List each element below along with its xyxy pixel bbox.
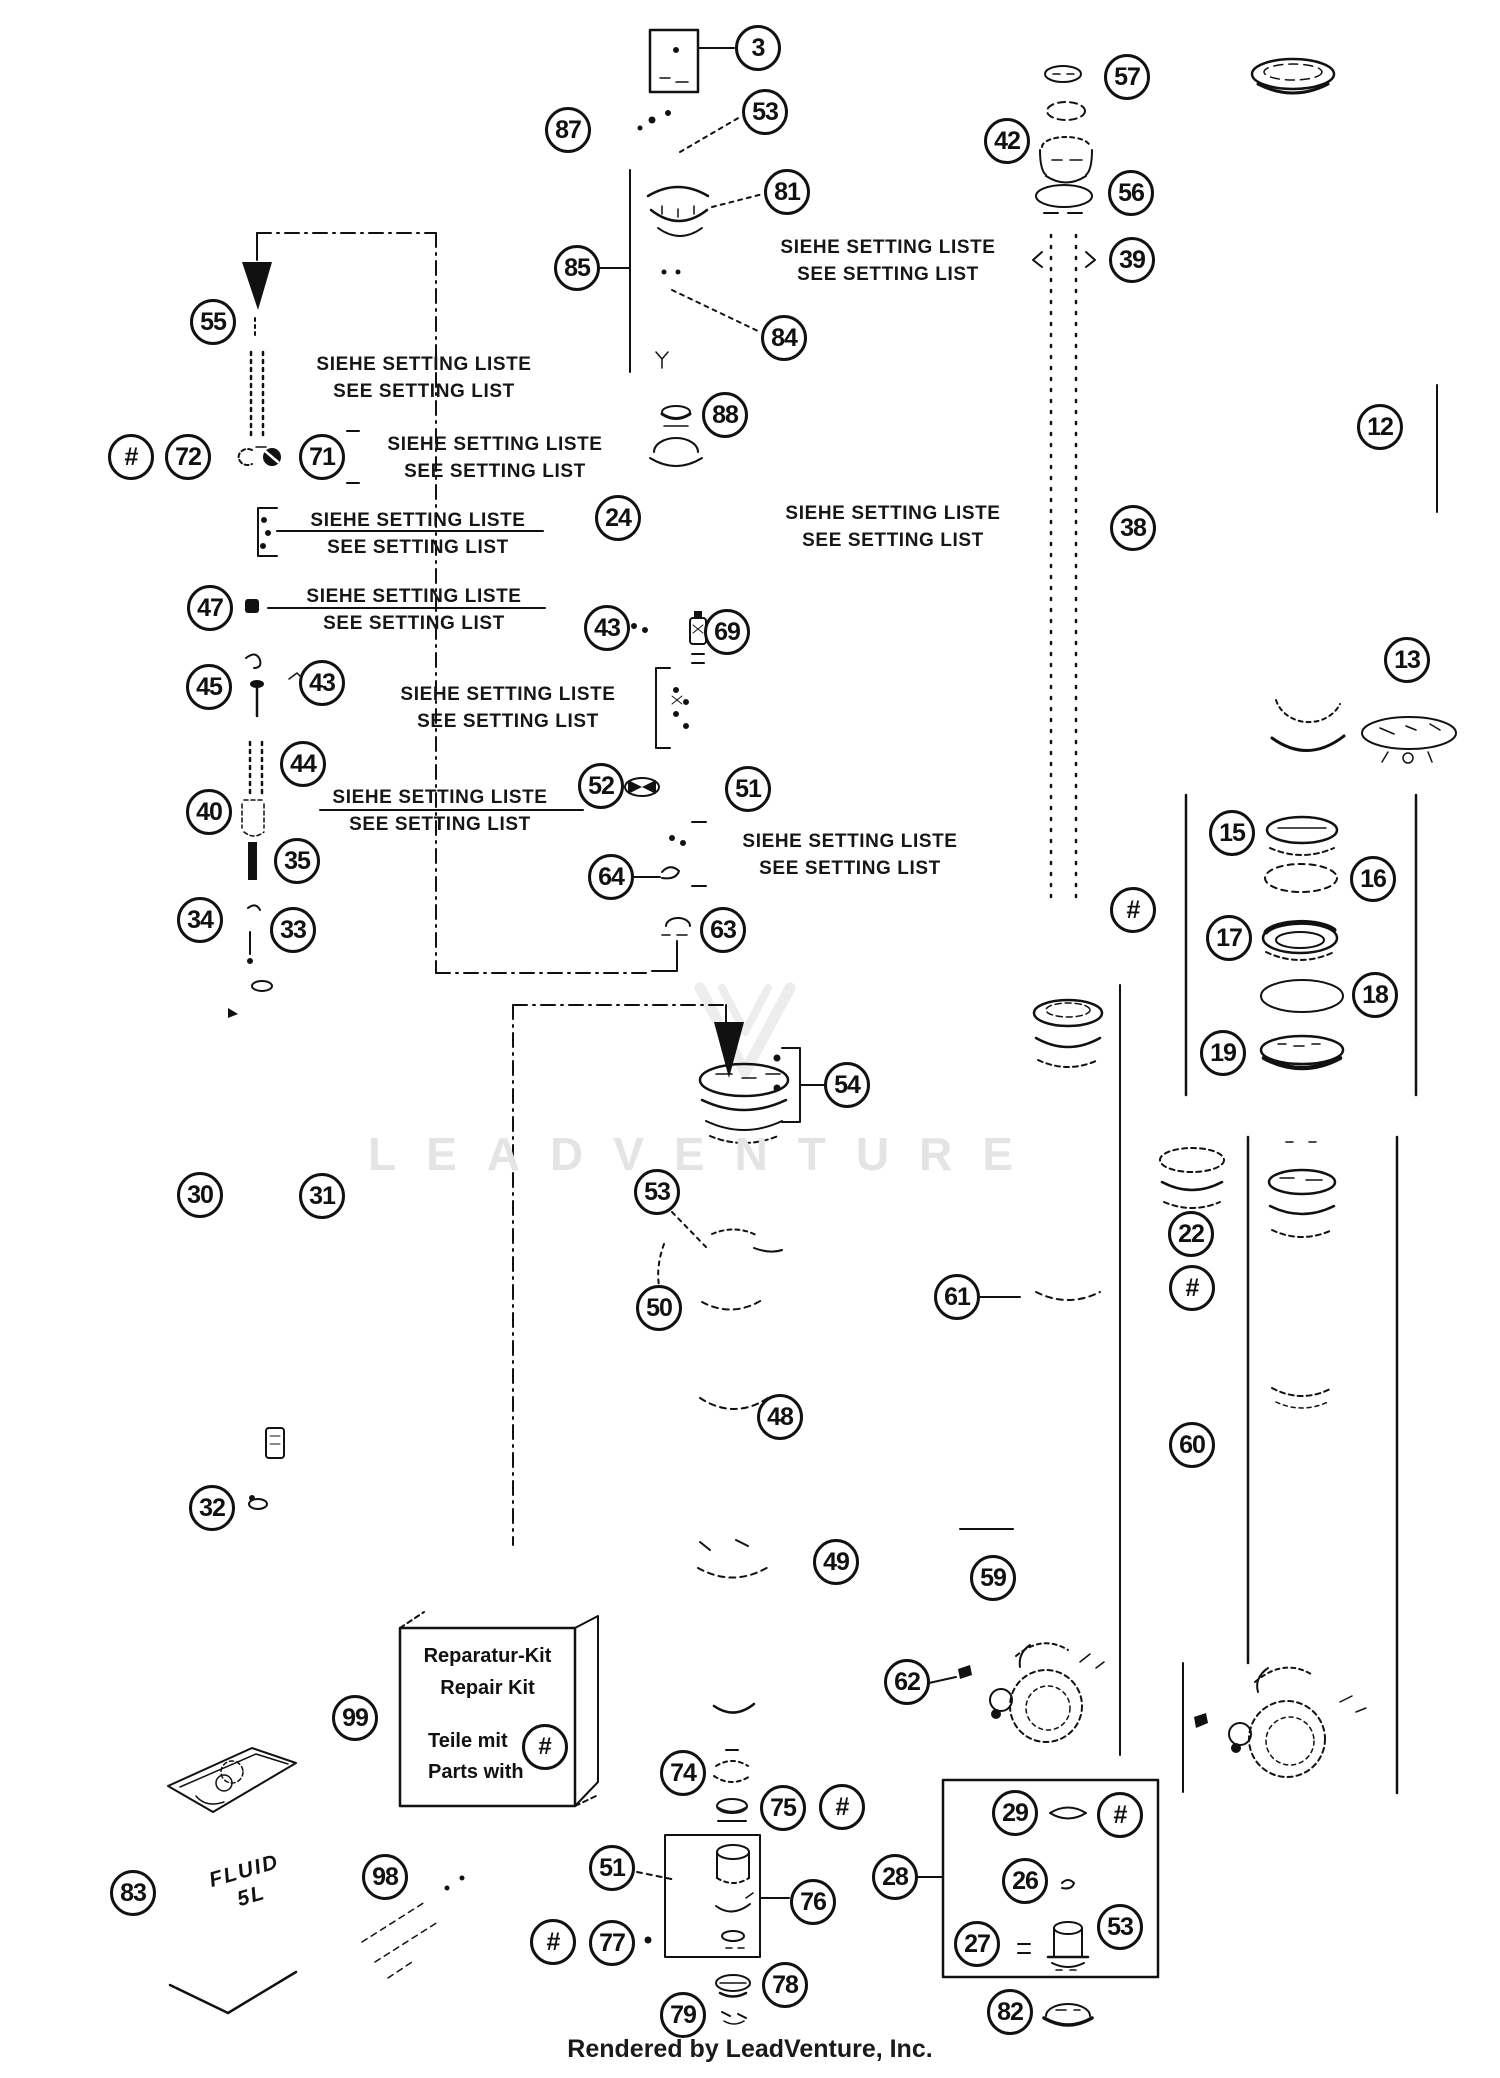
setting-note-de: SIEHE SETTING LISTE xyxy=(310,507,525,534)
callout-hash-15[interactable]: # xyxy=(108,434,154,480)
callout-label: 60 xyxy=(1179,1433,1205,1458)
callout-55-14[interactable]: 55 xyxy=(190,299,236,345)
callout-28-58[interactable]: 28 xyxy=(872,1854,918,1900)
callout-label: 75 xyxy=(770,1796,796,1821)
callout-32-49[interactable]: 32 xyxy=(189,1485,235,1531)
callout-label: 54 xyxy=(834,1073,860,1098)
callout-label: 79 xyxy=(670,2003,696,2028)
callout-33-31[interactable]: 33 xyxy=(270,907,316,953)
setting-note-de: SIEHE SETTING LISTE xyxy=(387,431,602,458)
callout-16-35[interactable]: 16 xyxy=(1350,856,1396,902)
callout-label: 82 xyxy=(997,2000,1023,2025)
callout-3-0[interactable]: 3 xyxy=(735,25,781,71)
setting-note-4: SIEHE SETTING LISTESEE SETTING LIST xyxy=(400,681,615,735)
callout-label: 30 xyxy=(187,1183,213,1208)
callout-label: 61 xyxy=(944,1285,970,1310)
setting-note-en: SEE SETTING LIST xyxy=(332,811,547,838)
callout-label: 84 xyxy=(771,326,797,351)
callout-label: 56 xyxy=(1118,181,1144,206)
callout-hash-46[interactable]: # xyxy=(1169,1265,1215,1311)
callout-label: 43 xyxy=(594,616,620,641)
setting-note-en: SEE SETTING LIST xyxy=(310,534,525,561)
callout-label: 78 xyxy=(772,1973,798,1998)
callout-13-13[interactable]: 13 xyxy=(1384,637,1430,683)
callout-label: 24 xyxy=(605,506,631,531)
setting-note-en: SEE SETTING LIST xyxy=(306,610,521,637)
callout-label: 35 xyxy=(284,849,310,874)
callout-15-34[interactable]: 15 xyxy=(1209,810,1255,856)
callout-label: 28 xyxy=(882,1865,908,1890)
callout-49-50[interactable]: 49 xyxy=(813,1539,859,1585)
callout-38-12[interactable]: 38 xyxy=(1110,505,1156,551)
callout-label: 53 xyxy=(1107,1915,1133,1940)
setting-note-en: SEE SETTING LIST xyxy=(400,708,615,735)
setting-note-de: SIEHE SETTING LISTE xyxy=(785,500,1000,527)
callout-84-5[interactable]: 84 xyxy=(761,315,807,361)
callout-label: 55 xyxy=(200,310,226,335)
callout-label: 40 xyxy=(196,800,222,825)
callout-label: 98 xyxy=(372,1865,398,1890)
callout-82-71[interactable]: 82 xyxy=(987,1989,1033,2035)
callout-label: 69 xyxy=(714,620,740,645)
callout-label: 53 xyxy=(752,100,778,125)
setting-note-0: SIEHE SETTING LISTESEE SETTING LIST xyxy=(316,351,531,405)
callout-label: 62 xyxy=(894,1670,920,1695)
callout-18-37[interactable]: 18 xyxy=(1352,972,1398,1018)
callout-label: # xyxy=(836,1795,849,1820)
callout-label: 3 xyxy=(752,36,765,61)
callout-24-18[interactable]: 24 xyxy=(595,495,641,541)
setting-note-8: SIEHE SETTING LISTESEE SETTING LIST xyxy=(785,500,1000,554)
callout-26-68[interactable]: 26 xyxy=(1002,1858,1048,1904)
callout-label: 15 xyxy=(1219,821,1245,846)
callout-label: 76 xyxy=(800,1890,826,1915)
callout-17-36[interactable]: 17 xyxy=(1206,915,1252,961)
callout-31-41[interactable]: 31 xyxy=(299,1173,345,1219)
callout-label: 57 xyxy=(1114,65,1140,90)
callout-12-11[interactable]: 12 xyxy=(1357,404,1403,450)
footer-credit: Rendered by LeadVenture, Inc. xyxy=(0,2034,1500,2064)
setting-note-de: SIEHE SETTING LISTE xyxy=(316,351,531,378)
callout-75-55[interactable]: 75 xyxy=(760,1785,806,1831)
setting-note-en: SEE SETTING LIST xyxy=(785,527,1000,554)
setting-note-de: SIEHE SETTING LISTE xyxy=(780,234,995,261)
callout-label: 72 xyxy=(175,445,201,470)
callout-87-2[interactable]: 87 xyxy=(545,107,591,153)
callout-label: 53 xyxy=(644,1180,670,1205)
callout-29-66[interactable]: 29 xyxy=(992,1790,1038,1836)
callout-56-9[interactable]: 56 xyxy=(1108,170,1154,216)
callout-59-51[interactable]: 59 xyxy=(970,1555,1016,1601)
callout-label: 51 xyxy=(735,777,761,802)
callout-label: # xyxy=(1186,1276,1199,1301)
callout-label: 59 xyxy=(980,1566,1006,1591)
setting-note-7: SIEHE SETTING LISTESEE SETTING LIST xyxy=(780,234,995,288)
callout-40-25[interactable]: 40 xyxy=(186,789,232,835)
callout-44-24[interactable]: 44 xyxy=(280,741,326,787)
callout-label: 13 xyxy=(1394,648,1420,673)
callout-label: 99 xyxy=(342,1706,368,1731)
callout-label: 50 xyxy=(646,1296,672,1321)
callout-83-64[interactable]: 83 xyxy=(110,1870,156,1916)
repair-kit-title: Reparatur-Kit Repair Kit xyxy=(402,1640,573,1704)
callout-72-16[interactable]: 72 xyxy=(165,434,211,480)
callout-52-26[interactable]: 52 xyxy=(578,763,624,809)
callout-hash-33[interactable]: # xyxy=(1110,887,1156,933)
callout-label: 17 xyxy=(1216,926,1242,951)
callout-30-40[interactable]: 30 xyxy=(177,1172,223,1218)
callout-64-29[interactable]: 64 xyxy=(588,854,634,900)
callout-60-48[interactable]: 60 xyxy=(1169,1422,1215,1468)
callout-hash-67[interactable]: # xyxy=(1097,1792,1143,1838)
callout-79-63[interactable]: 79 xyxy=(660,1992,706,2038)
callout-62-52[interactable]: 62 xyxy=(884,1659,930,1705)
callout-27-69[interactable]: 27 xyxy=(954,1921,1000,1967)
callout-label: # xyxy=(1127,898,1140,923)
callout-label: 87 xyxy=(555,118,581,143)
setting-note-de: SIEHE SETTING LISTE xyxy=(332,784,547,811)
callout-label: 19 xyxy=(1210,1041,1236,1066)
watermark-text: LEADVENTURE xyxy=(368,1128,1043,1180)
callout-19-38[interactable]: 19 xyxy=(1200,1030,1246,1076)
callout-57-7[interactable]: 57 xyxy=(1104,54,1150,100)
callout-label: 88 xyxy=(712,403,738,428)
setting-note-2: SIEHE SETTING LISTESEE SETTING LIST xyxy=(310,507,525,561)
callout-48-47[interactable]: 48 xyxy=(757,1394,803,1440)
callout-label: 27 xyxy=(964,1932,990,1957)
parts-diagram-page: LEADVENTURE SIEHE SETTING LISTESEE SETTI… xyxy=(0,0,1500,2078)
callout-label: 32 xyxy=(199,1496,225,1521)
callout-label: 49 xyxy=(823,1550,849,1575)
callout-42-8[interactable]: 42 xyxy=(984,118,1030,164)
callout-label: # xyxy=(125,445,138,470)
callout-label: 44 xyxy=(290,752,316,777)
setting-note-de: SIEHE SETTING LISTE xyxy=(742,828,957,855)
callout-54-39[interactable]: 54 xyxy=(824,1062,870,1108)
setting-note-en: SEE SETTING LIST xyxy=(742,855,957,882)
callout-label: 29 xyxy=(1002,1801,1028,1826)
callout-label: 12 xyxy=(1367,415,1393,440)
callout-35-28[interactable]: 35 xyxy=(274,838,320,884)
callout-label: 63 xyxy=(710,918,736,943)
callout-label: 43 xyxy=(309,671,335,696)
setting-note-6: SIEHE SETTING LISTESEE SETTING LIST xyxy=(742,828,957,882)
setting-note-en: SEE SETTING LIST xyxy=(387,458,602,485)
setting-note-1: SIEHE SETTING LISTESEE SETTING LIST xyxy=(387,431,602,485)
callout-hash-56[interactable]: # xyxy=(819,1784,865,1830)
callout-label: # xyxy=(547,1930,560,1955)
repair-kit-note: Teile mit Parts with xyxy=(428,1726,524,1788)
repair-kit-note-en: Parts with xyxy=(428,1757,524,1788)
callout-22-45[interactable]: 22 xyxy=(1168,1211,1214,1257)
setting-note-de: SIEHE SETTING LISTE xyxy=(306,583,521,610)
callout-label: 45 xyxy=(196,675,222,700)
callout-53-42[interactable]: 53 xyxy=(634,1169,680,1215)
callout-label: 33 xyxy=(280,918,306,943)
callout-76-59[interactable]: 76 xyxy=(790,1879,836,1925)
callout-53-70[interactable]: 53 xyxy=(1097,1904,1143,1950)
callout-51-27[interactable]: 51 xyxy=(725,766,771,812)
repair-kit-hash-badge: # xyxy=(522,1724,568,1770)
callout-label: 71 xyxy=(309,445,335,470)
callout-50-43[interactable]: 50 xyxy=(636,1285,682,1331)
callout-label: 52 xyxy=(588,774,614,799)
callout-71-17[interactable]: 71 xyxy=(299,434,345,480)
callout-99-53[interactable]: 99 xyxy=(332,1695,378,1741)
callout-98-65[interactable]: 98 xyxy=(362,1854,408,1900)
callout-77-61[interactable]: 77 xyxy=(589,1920,635,1966)
callout-43-21[interactable]: 43 xyxy=(299,660,345,706)
setting-note-en: SEE SETTING LIST xyxy=(780,261,995,288)
callout-51-57[interactable]: 51 xyxy=(589,1845,635,1891)
repair-kit-title-de: Reparatur-Kit xyxy=(402,1640,573,1672)
callout-label: 77 xyxy=(599,1931,625,1956)
callout-label: 64 xyxy=(598,865,624,890)
callout-label: 38 xyxy=(1120,516,1146,541)
callout-74-54[interactable]: 74 xyxy=(660,1750,706,1796)
callout-label: # xyxy=(1114,1803,1127,1828)
callout-39-10[interactable]: 39 xyxy=(1109,237,1155,283)
callout-label: 47 xyxy=(197,596,223,621)
callout-label: 31 xyxy=(309,1184,335,1209)
callout-label: 39 xyxy=(1119,248,1145,273)
setting-note-de: SIEHE SETTING LISTE xyxy=(400,681,615,708)
callout-88-6[interactable]: 88 xyxy=(702,392,748,438)
callout-label: 26 xyxy=(1012,1869,1038,1894)
callout-81-3[interactable]: 81 xyxy=(764,169,810,215)
callout-label: 51 xyxy=(599,1856,625,1881)
setting-note-en: SEE SETTING LIST xyxy=(316,378,531,405)
callout-63-32[interactable]: 63 xyxy=(700,907,746,953)
callout-78-62[interactable]: 78 xyxy=(762,1962,808,2008)
callout-34-30[interactable]: 34 xyxy=(177,897,223,943)
callout-85-4[interactable]: 85 xyxy=(554,245,600,291)
callout-label: 83 xyxy=(120,1881,146,1906)
callout-43-22[interactable]: 43 xyxy=(584,605,630,651)
callout-label: 22 xyxy=(1178,1222,1204,1247)
callout-label: 16 xyxy=(1360,867,1386,892)
callout-53-1[interactable]: 53 xyxy=(742,89,788,135)
setting-note-5: SIEHE SETTING LISTESEE SETTING LIST xyxy=(332,784,547,838)
callout-45-20[interactable]: 45 xyxy=(186,664,232,710)
repair-kit-note-de: Teile mit xyxy=(428,1726,524,1757)
repair-kit-hash-label: # xyxy=(538,1735,551,1759)
setting-note-3: SIEHE SETTING LISTESEE SETTING LIST xyxy=(306,583,521,637)
callout-label: 18 xyxy=(1362,983,1388,1008)
callout-hash-60[interactable]: # xyxy=(530,1919,576,1965)
callout-69-23[interactable]: 69 xyxy=(704,609,750,655)
repair-kit-title-en: Repair Kit xyxy=(402,1672,573,1704)
callout-label: 42 xyxy=(994,129,1020,154)
callout-61-44[interactable]: 61 xyxy=(934,1274,980,1320)
callout-label: 85 xyxy=(564,256,590,281)
callout-label: 34 xyxy=(187,908,213,933)
callout-label: 48 xyxy=(767,1405,793,1430)
callout-label: 74 xyxy=(670,1761,696,1786)
callout-47-19[interactable]: 47 xyxy=(187,585,233,631)
callout-label: 81 xyxy=(774,180,800,205)
